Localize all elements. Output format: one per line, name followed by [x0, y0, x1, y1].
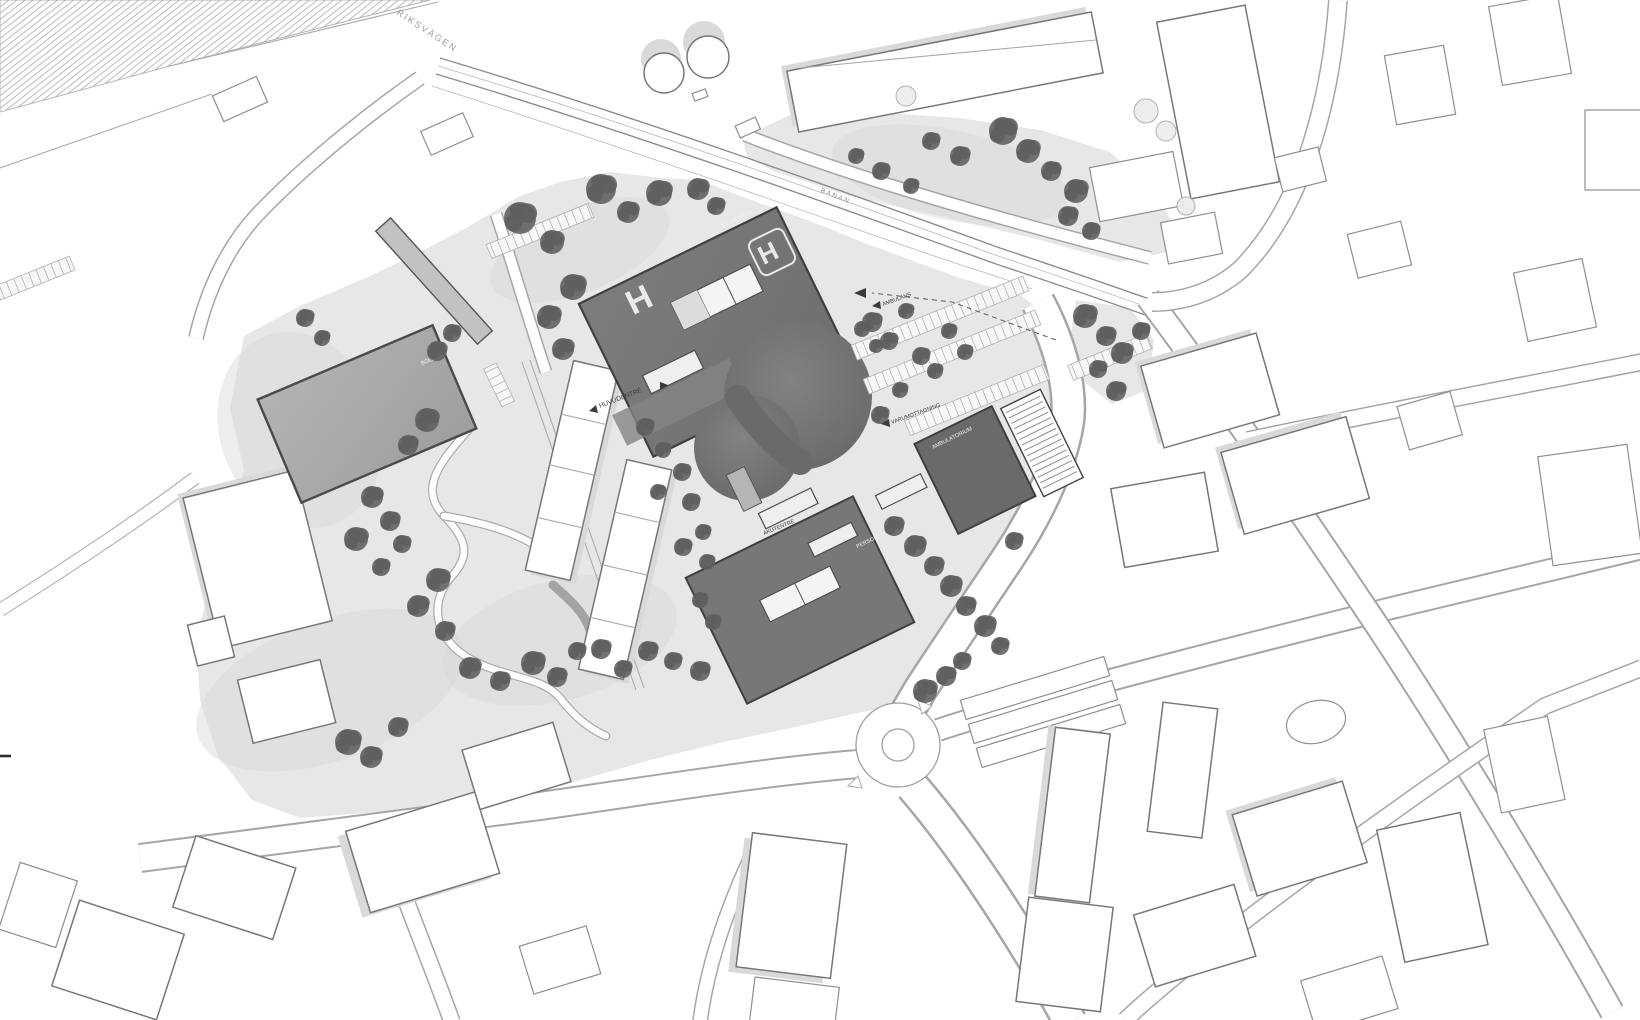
site-plan-drawing: BOLLPLAN H H SJUKHUS — [0, 0, 1640, 1020]
context-building — [1489, 0, 1572, 85]
site-plan-canvas: BOLLPLAN H H SJUKHUS — [0, 0, 1640, 1020]
context-building — [1016, 897, 1113, 1012]
storage-tanks — [641, 21, 729, 101]
context-building — [1377, 813, 1488, 963]
context-building — [1274, 147, 1326, 192]
outline-tree — [1156, 121, 1176, 141]
context-tank — [1282, 694, 1351, 750]
roundabout — [848, 700, 940, 788]
context-building — [728, 833, 847, 984]
context-building — [1111, 472, 1218, 567]
context-building — [1301, 956, 1398, 1020]
outline-tree — [1177, 197, 1195, 215]
context-building — [1538, 444, 1640, 565]
context-building — [519, 926, 601, 994]
context-building — [781, 7, 1103, 132]
context-building — [750, 977, 840, 1020]
context-building — [1225, 777, 1367, 896]
context-building — [1384, 45, 1455, 124]
context-building — [0, 862, 77, 947]
tree — [953, 652, 972, 670]
context-building — [1585, 110, 1640, 190]
tree — [936, 666, 957, 686]
outline-tree — [896, 86, 916, 106]
tree — [991, 637, 1010, 655]
road-name-label: RIKSVÄGEN — [395, 7, 460, 54]
outline-tree — [1134, 99, 1158, 123]
context-building — [1347, 221, 1411, 278]
context-building — [421, 113, 474, 155]
context-building — [52, 900, 184, 1020]
context-building — [1028, 725, 1110, 903]
context-building — [1147, 702, 1217, 838]
parking-row — [0, 256, 75, 300]
tree — [974, 615, 997, 637]
context-building — [1133, 884, 1255, 986]
context-building — [1513, 258, 1596, 341]
context-building — [212, 76, 267, 121]
